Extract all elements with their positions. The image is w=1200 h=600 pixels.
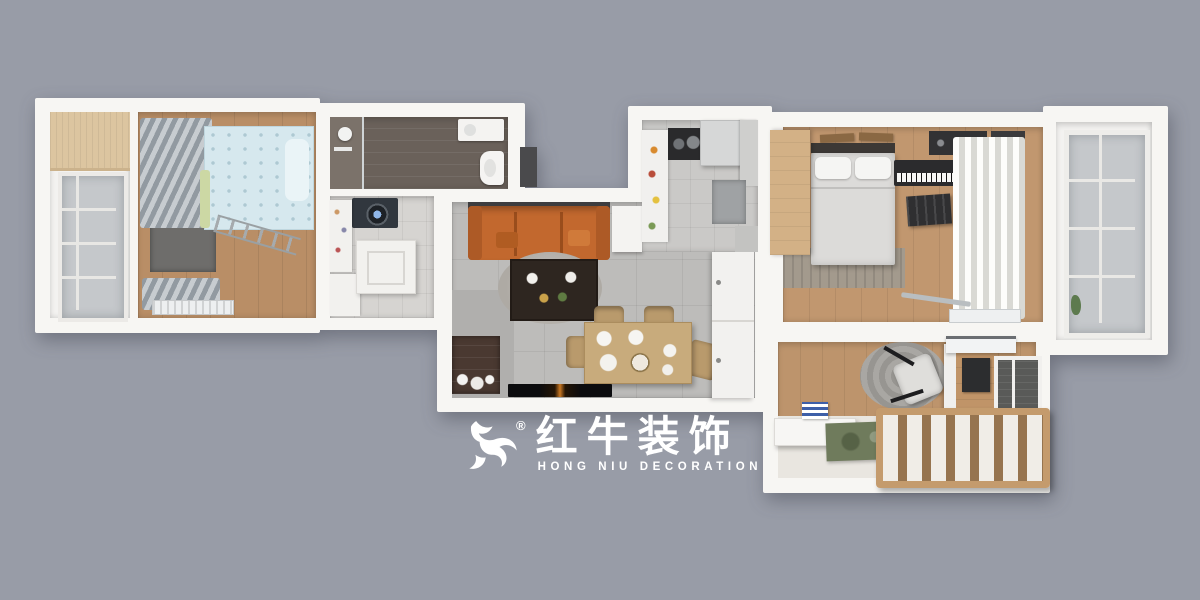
master-bedroom <box>783 127 1043 322</box>
toilet <box>480 151 504 185</box>
sink-bowl <box>464 124 476 136</box>
apartment-floorplan <box>0 0 1200 600</box>
shower-head <box>338 127 352 141</box>
side-table <box>612 206 642 252</box>
worktable-inset <box>367 251 405 285</box>
shower-shelf <box>334 147 352 151</box>
window-bar <box>1069 227 1135 230</box>
window-bar <box>1069 275 1135 278</box>
kitchen-island-sink <box>712 180 746 224</box>
window-bar <box>62 208 116 211</box>
left-balcony <box>50 112 130 318</box>
bed-pillow <box>285 139 309 201</box>
shower-area <box>330 117 364 189</box>
bed-headboard-green <box>200 170 210 228</box>
laundry-room <box>330 196 434 318</box>
second-bedroom <box>778 342 1036 478</box>
book-stack <box>802 402 828 419</box>
tv-screen <box>508 384 612 397</box>
toilet-seat <box>484 159 496 177</box>
registered-mark: ® <box>516 418 526 433</box>
washing-machine <box>352 198 398 228</box>
kitchen-tall-cabinet <box>740 120 758 186</box>
sofa-pillow <box>568 230 590 246</box>
balcony-storage-cabinet <box>50 112 130 171</box>
white-curtains <box>953 137 1025 319</box>
hongniu-logo: ® 红牛装饰 HONG NIU DECORATION <box>458 416 762 478</box>
window-bar <box>62 242 116 245</box>
fridge <box>700 120 742 166</box>
sofa-cushion-seam <box>560 212 563 256</box>
cooktop <box>668 128 704 160</box>
hongniu-bull-logo-icon <box>458 416 522 478</box>
bathroom-sink <box>458 119 504 141</box>
picture-frame <box>859 132 893 141</box>
blanket-fold <box>811 187 895 189</box>
right-balcony-window <box>1064 130 1150 338</box>
radiator <box>152 300 234 315</box>
laundry-worktable <box>356 240 416 294</box>
bathroom <box>330 117 508 189</box>
window-bar <box>1069 179 1135 182</box>
picture-frame <box>820 133 854 143</box>
laundry-shelf-cabinet <box>330 200 352 272</box>
plant <box>1071 295 1081 315</box>
dining-table <box>584 322 692 384</box>
logo-text-block: 红牛装饰 HONG NIU DECORATION <box>526 416 763 473</box>
kitchen <box>642 120 758 252</box>
ac-unit <box>946 336 1016 353</box>
floor-speakers <box>454 370 496 394</box>
pillow <box>855 157 891 179</box>
black-chair <box>906 194 952 227</box>
slatted-bed-frame <box>876 408 1050 488</box>
wardrobe-door-split <box>712 320 754 322</box>
window-bar <box>62 276 116 279</box>
brand-name-english: HONG NIU DECORATION <box>538 461 763 473</box>
floorplan-scene: ® 红牛装饰 HONG NIU DECORATION <box>0 0 1200 600</box>
kitchen-counter-left <box>642 130 668 242</box>
sofa-armrest-right <box>596 206 610 260</box>
master-radiator <box>949 309 1021 323</box>
master-wardrobe <box>770 130 810 255</box>
kids-bedroom <box>138 112 316 318</box>
sofa-armrest-left <box>468 206 482 260</box>
living-wardrobe <box>712 250 754 398</box>
wardrobe-handle <box>716 358 721 363</box>
pillow <box>815 157 851 179</box>
bed-headboard <box>811 143 895 153</box>
wardrobe-handle <box>716 280 721 285</box>
monitor <box>962 358 990 392</box>
balcony-window-glass <box>58 172 128 322</box>
sofa-pillow <box>496 232 518 248</box>
brand-name-chinese: 红牛装饰 <box>536 416 763 458</box>
bathroom-doorway <box>520 147 537 187</box>
kitchen-counter-corner <box>735 226 758 252</box>
coffee-table <box>510 259 598 321</box>
right-balcony <box>1056 122 1152 340</box>
master-bed <box>811 153 895 265</box>
